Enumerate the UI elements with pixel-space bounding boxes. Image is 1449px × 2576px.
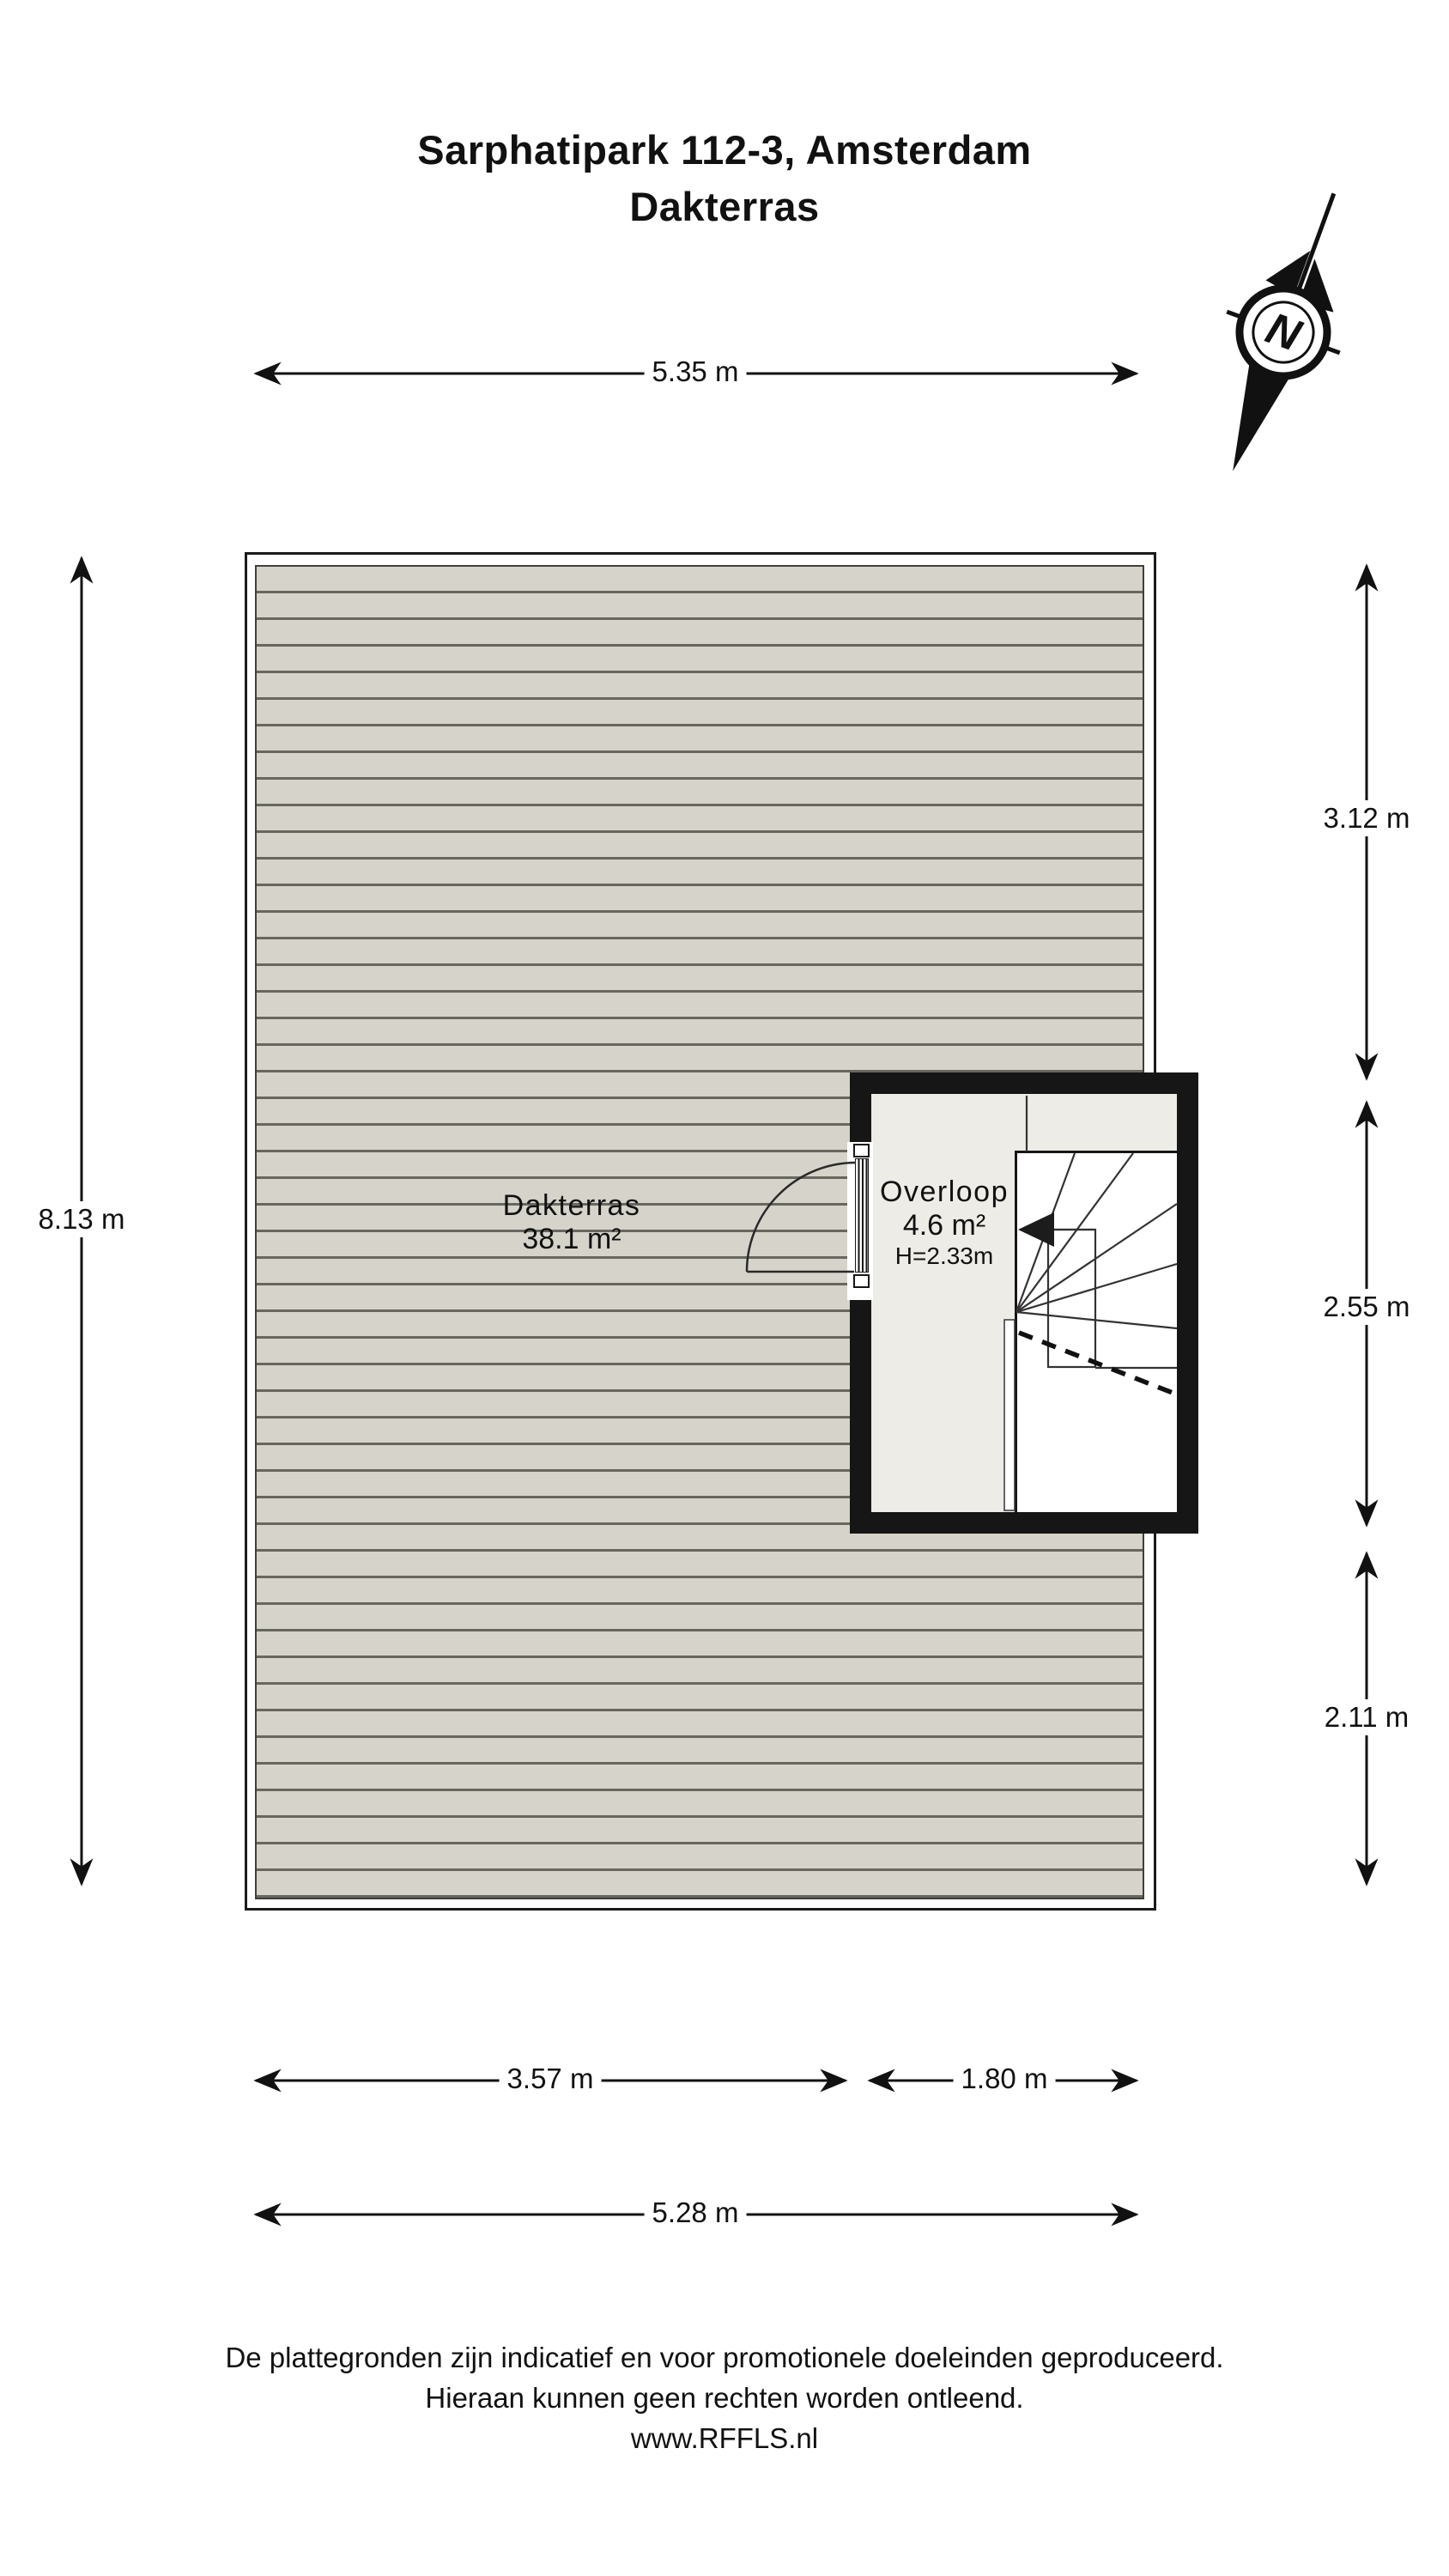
dim-label-top: 5.35 m [645,354,747,390]
disclaimer-line-1: De plattegronden zijn indicatief en voor… [0,2337,1449,2378]
door-leaf [855,1158,869,1273]
dim-label-bottom-3: 5.28 m [645,2195,747,2231]
website-url: www.RFFLS.nl [0,2418,1449,2458]
north-arrow-south-spike [1210,345,1299,480]
overloop-area: 4.6 m² [880,1209,1009,1242]
north-arrow-label: N [1259,303,1307,361]
overloop-label: Overloop 4.6 m² H=2.33m [880,1176,1009,1270]
dim-label-right-2: 2.55 m [1316,1289,1418,1325]
dim-label-bottom-2: 1.80 m [954,2061,1056,2097]
title-floor: Dakterras [0,179,1449,235]
staircase-area [1015,1151,1177,1512]
page-title: Sarphatipark 112-3, Amsterdam Dakterras [0,122,1449,235]
disclaimer-line-2: Hieraan kunnen geen rechten worden ontle… [0,2378,1449,2418]
dakterras-label: Dakterras 38.1 m² [503,1189,641,1256]
door-frame-block-bottom [853,1274,870,1288]
overloop-height: H=2.33m [880,1242,1009,1270]
dakterras-name: Dakterras [503,1189,641,1223]
overloop-name: Overloop [880,1176,1009,1209]
dakterras-area: 38.1 m² [503,1223,641,1256]
dim-label-bottom-1: 3.57 m [500,2061,602,2097]
dim-label-right-3: 2.11 m [1317,1699,1416,1735]
north-arrow-left-wing [1264,240,1310,295]
disclaimer: De plattegronden zijn indicatief en voor… [0,2337,1449,2458]
title-address: Sarphatipark 112-3, Amsterdam [0,122,1449,179]
north-arrow-right-wing [1299,258,1349,315]
floorplan-page: { "title": { "line1": "Sarphatipark 112-… [0,0,1449,2576]
dim-label-left: 8.13 m [31,1201,133,1237]
door-frame-block-top [853,1144,870,1157]
dim-label-right-1: 3.12 m [1316,800,1418,836]
